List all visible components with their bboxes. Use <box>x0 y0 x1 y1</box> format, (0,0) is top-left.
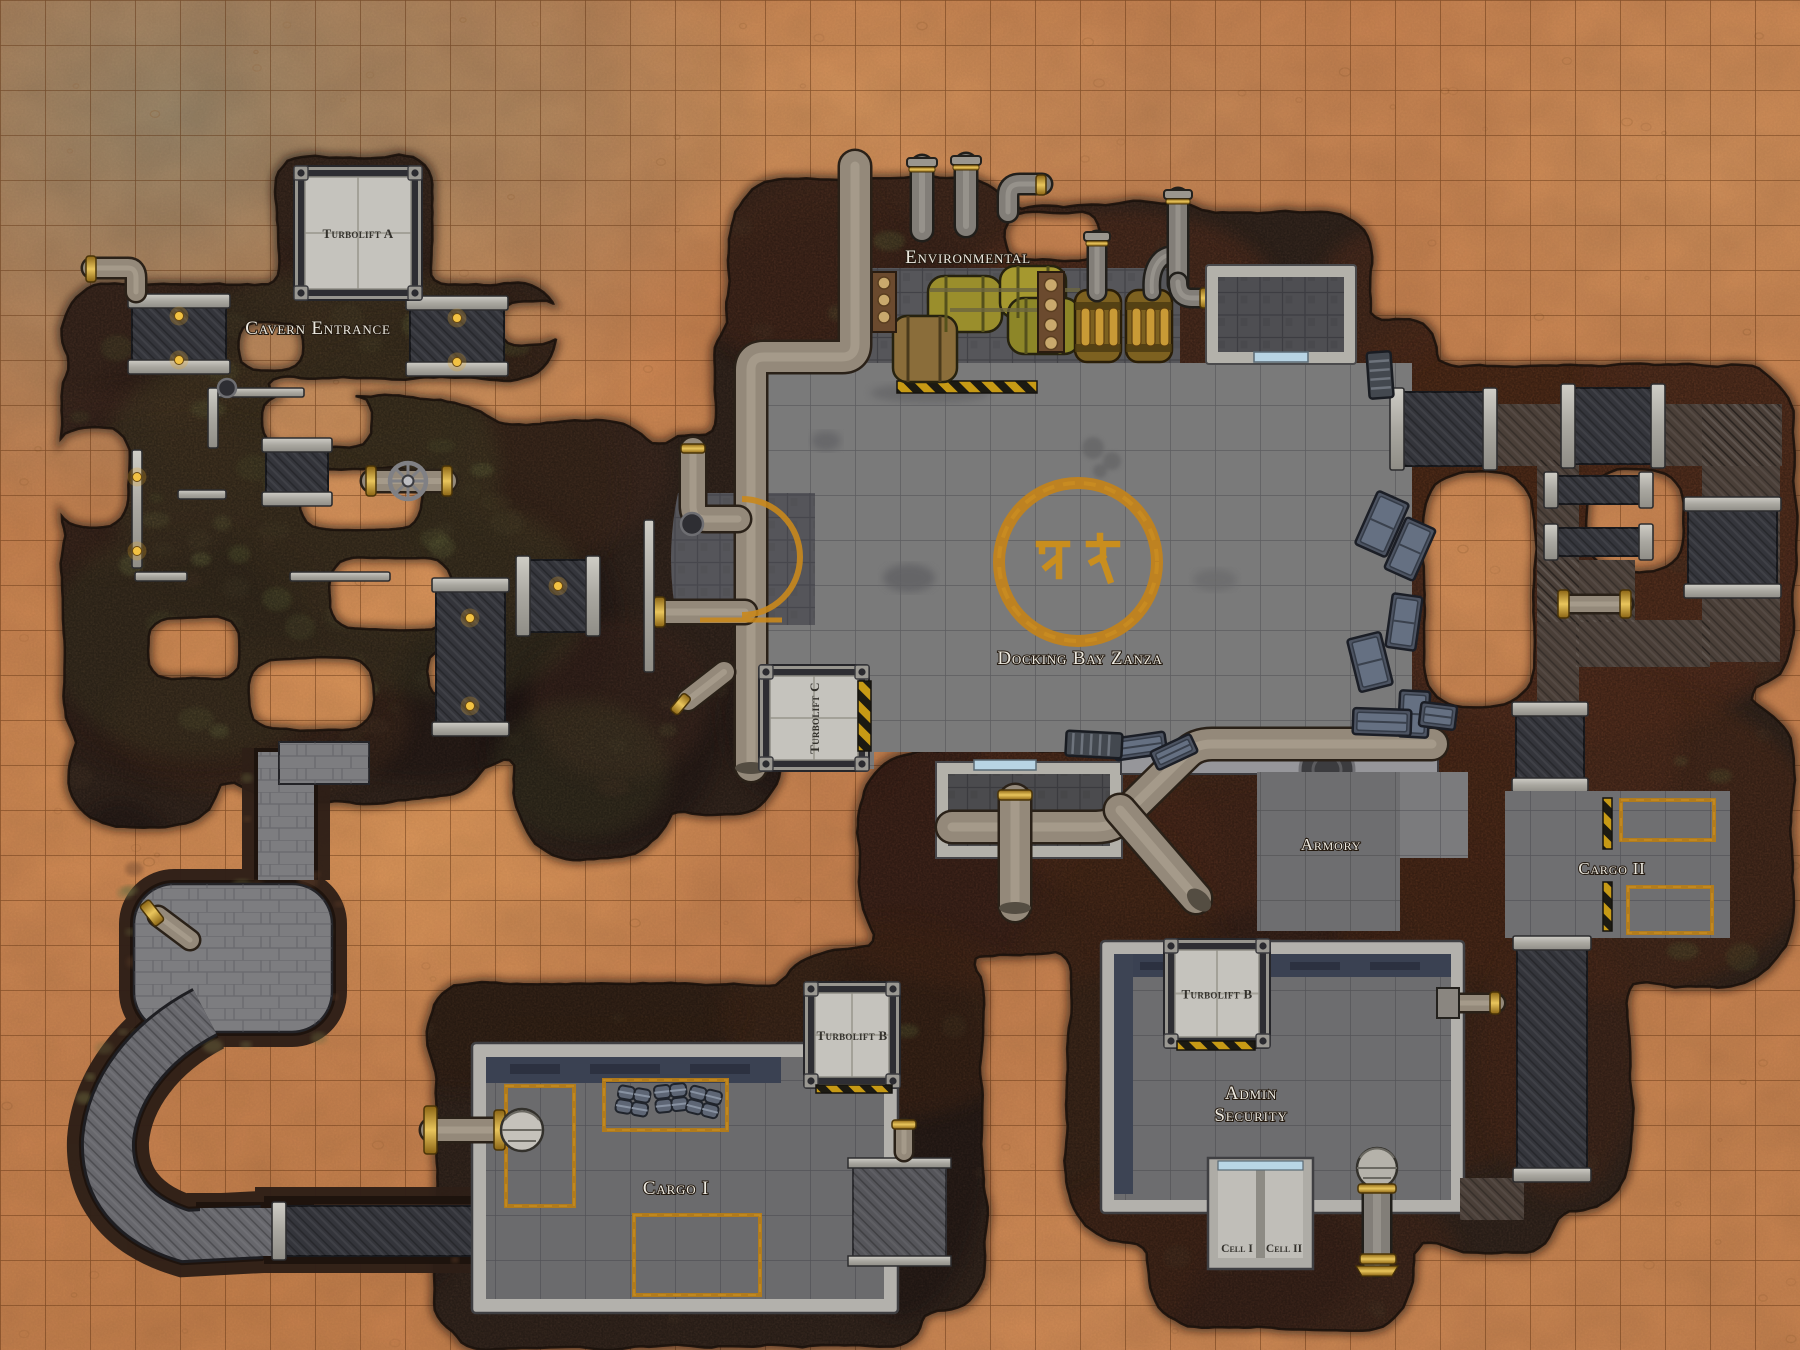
svg-text:Turbolift B: Turbolift B <box>817 1028 888 1043</box>
svg-text:Environmental: Environmental <box>905 247 1031 268</box>
svg-text:Cell I: Cell I <box>1221 1243 1253 1255</box>
svg-text:Cavern Entrance: Cavern Entrance <box>245 318 391 339</box>
svg-text:Armory: Armory <box>1301 835 1361 854</box>
svg-text:Cargo I: Cargo I <box>643 1178 709 1199</box>
svg-text:Cell II: Cell II <box>1266 1243 1303 1255</box>
svg-text:Turbolift B: Turbolift B <box>1182 987 1253 1002</box>
svg-text:Turbolift A: Turbolift A <box>323 226 394 241</box>
svg-text:Security: Security <box>1214 1105 1287 1126</box>
svg-text:Admin: Admin <box>1225 1083 1277 1104</box>
svg-text:Turbolift C: Turbolift C <box>807 682 822 754</box>
svg-text:Cargo II: Cargo II <box>1578 859 1645 878</box>
svg-text:Docking Bay Zanza: Docking Bay Zanza <box>997 648 1162 669</box>
